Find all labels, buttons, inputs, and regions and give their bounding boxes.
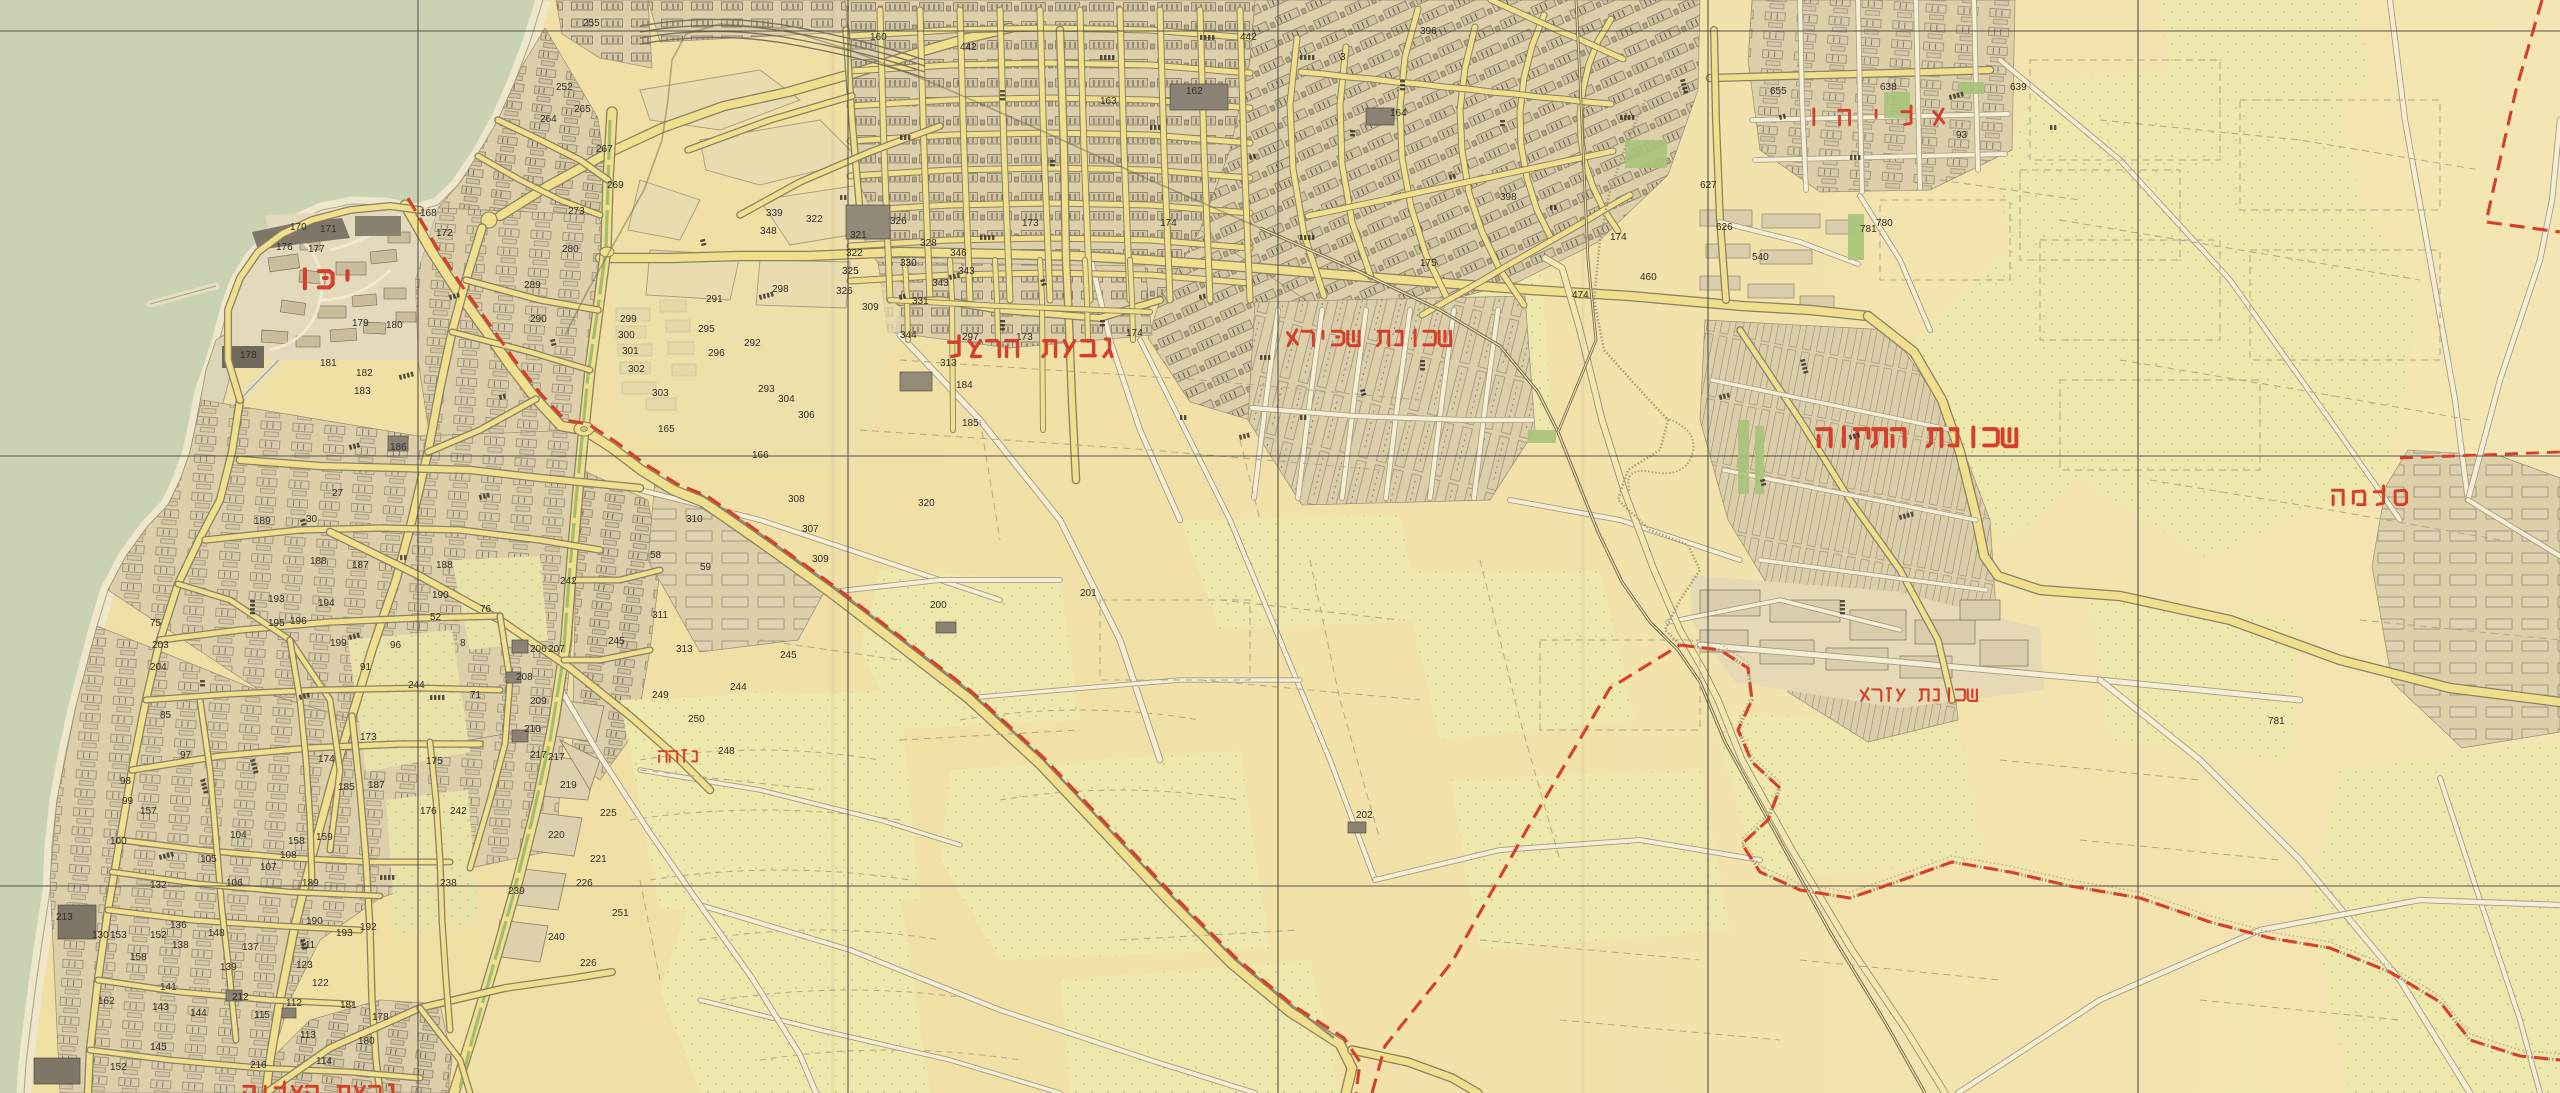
svg-text:122: 122 — [312, 978, 329, 989]
svg-text:310: 310 — [686, 514, 703, 525]
svg-text:239: 239 — [508, 886, 525, 897]
svg-text:99: 99 — [122, 796, 134, 807]
svg-text:182: 182 — [356, 368, 373, 379]
svg-text:170: 170 — [290, 222, 307, 233]
svg-text:168: 168 — [420, 208, 437, 219]
svg-text:158: 158 — [130, 952, 147, 963]
svg-text:321: 321 — [850, 230, 867, 241]
svg-text:108: 108 — [280, 850, 297, 861]
svg-text:59: 59 — [700, 562, 712, 573]
svg-text:172: 172 — [436, 228, 453, 239]
svg-text:185: 185 — [338, 782, 355, 793]
svg-text:307: 307 — [802, 524, 819, 535]
svg-text:163: 163 — [1100, 96, 1117, 107]
svg-text:280: 280 — [562, 244, 579, 255]
svg-text:123: 123 — [296, 960, 313, 971]
svg-text:179: 179 — [352, 318, 369, 329]
svg-text:27: 27 — [332, 488, 344, 499]
svg-text:204: 204 — [150, 662, 167, 673]
svg-text:330: 330 — [900, 258, 917, 269]
svg-text:442: 442 — [1240, 32, 1257, 43]
svg-text:293: 293 — [758, 384, 775, 395]
svg-text:76: 76 — [480, 604, 492, 615]
svg-text:113: 113 — [300, 1030, 316, 1041]
svg-text:238: 238 — [440, 878, 457, 889]
svg-text:306: 306 — [798, 410, 815, 421]
svg-text:639: 639 — [2010, 82, 2027, 93]
svg-text:781: 781 — [2268, 716, 2285, 727]
svg-text:325: 325 — [842, 266, 859, 277]
svg-text:781: 781 — [1860, 224, 1877, 235]
svg-text:311: 311 — [652, 610, 668, 621]
svg-text:166: 166 — [752, 450, 769, 461]
svg-text:188: 188 — [310, 556, 327, 567]
svg-text:398: 398 — [1500, 192, 1517, 203]
svg-text:148: 148 — [208, 928, 225, 939]
svg-text:162: 162 — [1186, 86, 1203, 97]
svg-text:181: 181 — [320, 358, 337, 369]
svg-text:132: 132 — [150, 880, 167, 891]
svg-text:201: 201 — [1080, 588, 1097, 599]
svg-text:193: 193 — [336, 928, 353, 939]
svg-text:265: 265 — [574, 104, 591, 115]
svg-text:304: 304 — [778, 394, 795, 405]
svg-text:187: 187 — [368, 780, 385, 791]
svg-text:322: 322 — [806, 214, 823, 225]
svg-text:296: 296 — [708, 348, 725, 359]
svg-text:152: 152 — [110, 1062, 127, 1073]
svg-text:152: 152 — [150, 930, 167, 941]
svg-text:331: 331 — [912, 296, 929, 307]
svg-text:220: 220 — [548, 830, 565, 841]
svg-text:189: 189 — [254, 516, 271, 527]
svg-text:178: 178 — [240, 350, 257, 361]
svg-text:207: 207 — [548, 644, 565, 655]
svg-text:93: 93 — [1956, 130, 1968, 141]
svg-text:189: 189 — [302, 878, 319, 889]
svg-text:203: 203 — [152, 640, 169, 651]
svg-text:217: 217 — [548, 752, 565, 763]
svg-text:106: 106 — [226, 878, 243, 889]
svg-text:159: 159 — [316, 832, 333, 843]
svg-text:221: 221 — [590, 854, 607, 865]
svg-text:291: 291 — [706, 294, 723, 305]
svg-text:100: 100 — [110, 836, 127, 847]
svg-text:346: 346 — [950, 248, 967, 259]
svg-text:313: 313 — [940, 358, 957, 369]
svg-text:245: 245 — [608, 636, 625, 647]
svg-text:175: 175 — [1420, 258, 1437, 269]
svg-text:105: 105 — [200, 854, 217, 865]
svg-text:112: 112 — [286, 998, 302, 1009]
svg-text:195: 195 — [268, 618, 285, 629]
svg-text:174: 174 — [1160, 218, 1177, 229]
svg-text:30: 30 — [306, 514, 318, 525]
svg-text:192: 192 — [360, 922, 377, 933]
svg-text:322: 322 — [846, 248, 863, 259]
svg-text:343: 343 — [932, 278, 949, 289]
svg-text:303: 303 — [652, 388, 669, 399]
svg-text:97: 97 — [180, 750, 192, 761]
svg-text:251: 251 — [612, 908, 629, 919]
svg-text:75: 75 — [150, 618, 162, 629]
svg-text:348: 348 — [760, 226, 777, 237]
svg-text:199: 199 — [330, 638, 347, 649]
svg-text:210: 210 — [524, 724, 541, 735]
svg-text:193: 193 — [268, 594, 285, 605]
svg-text:174: 174 — [1126, 328, 1143, 339]
svg-text:309: 309 — [862, 302, 879, 313]
svg-text:160: 160 — [870, 32, 887, 43]
svg-text:85: 85 — [160, 710, 172, 721]
svg-text:171: 171 — [320, 224, 337, 235]
svg-text:219: 219 — [560, 780, 577, 791]
svg-text:158: 158 — [288, 836, 305, 847]
svg-text:273: 273 — [568, 206, 585, 217]
svg-text:780: 780 — [1876, 218, 1893, 229]
svg-text:58: 58 — [650, 550, 662, 561]
svg-text:212: 212 — [232, 992, 249, 1003]
svg-text:196: 196 — [290, 616, 307, 627]
svg-text:71: 71 — [470, 690, 482, 701]
svg-text:269: 269 — [607, 180, 624, 191]
svg-text:139: 139 — [220, 962, 237, 973]
svg-text:136: 136 — [170, 920, 187, 931]
svg-text:209: 209 — [530, 696, 547, 707]
svg-text:114: 114 — [316, 1056, 332, 1067]
svg-text:245: 245 — [780, 650, 797, 661]
svg-text:299: 299 — [620, 314, 637, 325]
svg-text:137: 137 — [242, 942, 259, 953]
svg-text:187: 187 — [352, 560, 369, 571]
svg-text:308: 308 — [788, 494, 805, 505]
svg-text:206: 206 — [530, 644, 547, 655]
svg-text:91: 91 — [360, 662, 372, 673]
svg-text:173: 173 — [1022, 218, 1039, 229]
svg-text:292: 292 — [744, 338, 761, 349]
svg-text:216: 216 — [250, 1060, 267, 1071]
svg-text:309: 309 — [812, 554, 829, 565]
svg-text:242: 242 — [450, 806, 467, 817]
svg-text:540: 540 — [1752, 252, 1769, 263]
svg-text:96: 96 — [390, 640, 402, 651]
svg-text:157: 157 — [140, 806, 157, 817]
svg-text:339: 339 — [766, 208, 783, 219]
svg-text:145: 145 — [150, 1042, 167, 1053]
svg-text:313: 313 — [676, 644, 693, 655]
svg-text:107: 107 — [260, 862, 277, 873]
svg-text:153: 153 — [110, 930, 127, 941]
svg-text:396: 396 — [1420, 26, 1437, 37]
svg-text:176: 176 — [420, 806, 437, 817]
svg-text:190: 190 — [306, 916, 323, 927]
svg-text:300: 300 — [618, 330, 635, 341]
svg-text:130: 130 — [92, 930, 109, 941]
svg-text:213: 213 — [56, 912, 73, 923]
svg-text:264: 264 — [540, 114, 557, 125]
svg-text:242: 242 — [560, 576, 577, 587]
svg-text:194: 194 — [318, 598, 335, 609]
svg-text:200: 200 — [930, 600, 947, 611]
svg-text:180: 180 — [358, 1036, 375, 1047]
svg-text:115: 115 — [254, 1010, 270, 1021]
svg-text:181: 181 — [340, 1000, 357, 1011]
svg-text:320: 320 — [918, 498, 935, 509]
svg-text:627: 627 — [1700, 180, 1717, 191]
svg-text:178: 178 — [372, 1012, 389, 1023]
svg-text:626: 626 — [1716, 222, 1733, 233]
svg-text:175: 175 — [426, 756, 443, 767]
svg-text:98: 98 — [120, 776, 132, 787]
svg-text:177: 177 — [308, 244, 325, 255]
svg-text:180: 180 — [386, 320, 403, 331]
svg-text:326: 326 — [890, 216, 907, 227]
svg-text:248: 248 — [718, 746, 735, 757]
svg-text:460: 460 — [1640, 272, 1657, 283]
svg-text:141: 141 — [160, 982, 177, 993]
svg-text:185: 185 — [962, 418, 979, 429]
svg-text:143: 143 — [152, 1002, 169, 1013]
svg-text:267: 267 — [596, 144, 613, 155]
svg-text:217: 217 — [530, 750, 547, 761]
svg-text:249: 249 — [652, 690, 669, 701]
svg-text:8: 8 — [460, 638, 466, 649]
svg-text:240: 240 — [548, 932, 565, 943]
svg-text:226: 226 — [576, 878, 593, 889]
svg-text:104: 104 — [230, 830, 247, 841]
svg-text:295: 295 — [698, 324, 715, 335]
svg-text:298: 298 — [772, 284, 789, 295]
svg-text:173: 173 — [360, 732, 377, 743]
svg-text:165: 165 — [658, 424, 675, 435]
svg-text:186: 186 — [390, 442, 407, 453]
svg-text:344: 344 — [900, 330, 917, 341]
svg-text:301: 301 — [622, 346, 639, 357]
svg-text:144: 144 — [190, 1008, 207, 1019]
svg-text:326: 326 — [836, 286, 853, 297]
svg-text:255: 255 — [583, 18, 600, 29]
svg-text:638: 638 — [1880, 82, 1897, 93]
svg-text:174: 174 — [318, 754, 335, 765]
svg-text:328: 328 — [920, 238, 937, 249]
svg-text:184: 184 — [956, 380, 973, 391]
svg-text:252: 252 — [556, 82, 573, 93]
svg-text:162: 162 — [98, 996, 115, 1007]
svg-text:208: 208 — [516, 672, 533, 683]
svg-text:174: 174 — [1610, 232, 1627, 243]
svg-text:226: 226 — [580, 958, 597, 969]
svg-text:302: 302 — [628, 364, 645, 375]
svg-text:474: 474 — [1572, 290, 1589, 301]
svg-text:188: 188 — [436, 560, 453, 571]
svg-text:202: 202 — [1356, 810, 1373, 821]
svg-text:290: 290 — [530, 314, 547, 325]
svg-text:244: 244 — [730, 682, 747, 693]
svg-text:3: 3 — [1340, 52, 1346, 63]
svg-text:176: 176 — [276, 242, 293, 253]
svg-text:442: 442 — [960, 42, 977, 53]
svg-text:138: 138 — [172, 940, 189, 951]
svg-text:164: 164 — [1390, 108, 1407, 119]
svg-text:190: 190 — [432, 590, 449, 601]
svg-text:183: 183 — [354, 386, 371, 397]
svg-text:655: 655 — [1770, 86, 1787, 97]
svg-text:289: 289 — [524, 280, 541, 291]
svg-text:343: 343 — [958, 266, 975, 277]
svg-text:225: 225 — [600, 808, 617, 819]
svg-text:52: 52 — [430, 612, 442, 623]
svg-text:244: 244 — [408, 680, 425, 691]
svg-text:250: 250 — [688, 714, 705, 725]
